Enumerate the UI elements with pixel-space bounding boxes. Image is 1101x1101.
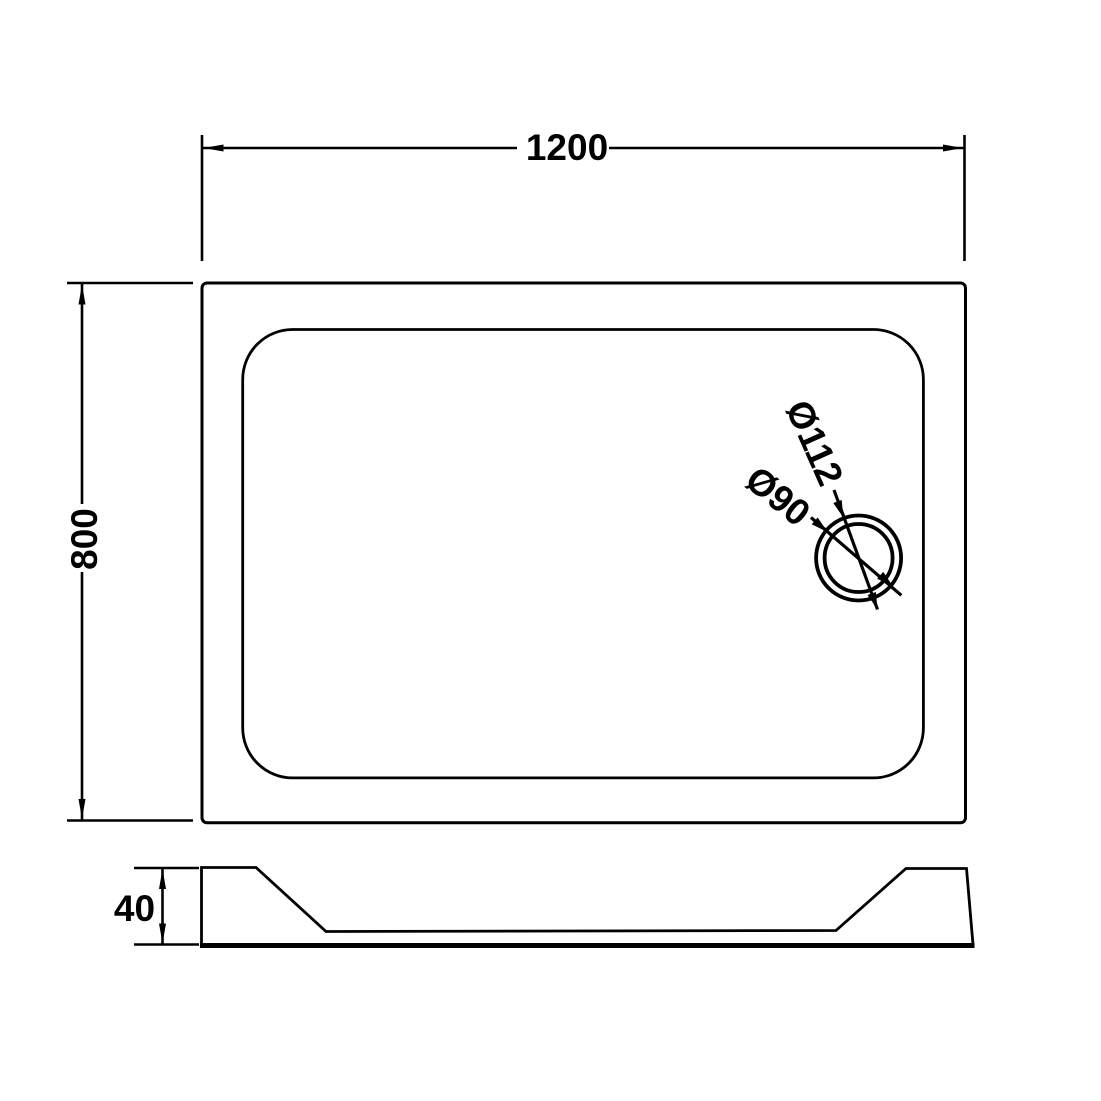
svg-text:40: 40 (114, 888, 155, 929)
svg-text:1200: 1200 (526, 127, 608, 168)
svg-text:800: 800 (64, 508, 105, 570)
